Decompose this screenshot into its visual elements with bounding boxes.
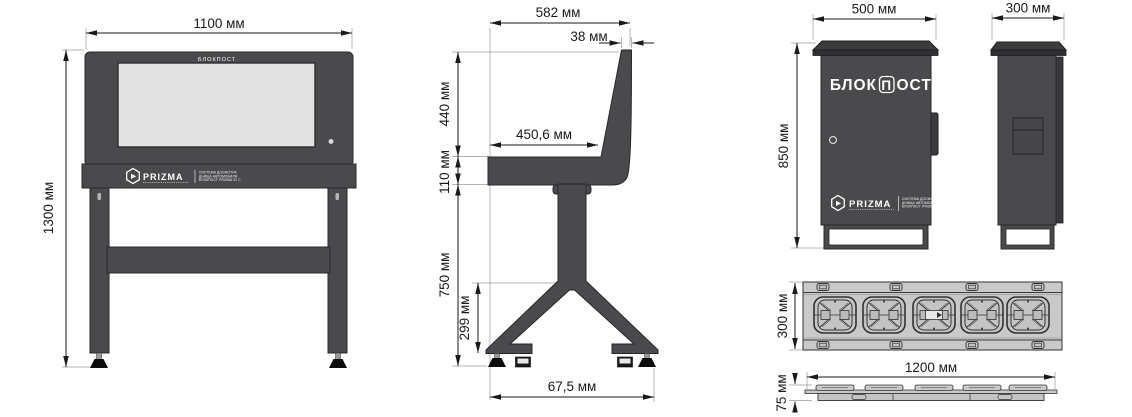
brand-letter: П xyxy=(881,78,892,93)
dim-console-height-label: 1300 мм xyxy=(41,182,56,234)
leg-slot xyxy=(98,193,102,200)
cabinet-base-vent xyxy=(829,229,923,245)
prizma-logo-text: PRIZMA xyxy=(143,172,184,182)
module-dome xyxy=(915,385,953,391)
module-dome xyxy=(865,385,903,391)
cabinet-side-roof xyxy=(991,42,1066,50)
dim-cabinet-width-label: 500 мм xyxy=(852,2,897,17)
cabinet-side-roof-flange xyxy=(991,50,1066,56)
view-cabinet-side: 300 мм xyxy=(991,1,1066,250)
plate-clip xyxy=(817,284,829,291)
dim-plate-length-label: 1200 мм xyxy=(905,360,957,375)
view-console-side: 582 мм 38 мм 440 мм 110 мм 750 мм 450,6 … xyxy=(437,5,658,402)
brand-prefix: БЛОК xyxy=(830,77,877,94)
foot-pad xyxy=(90,359,108,368)
scanner-module xyxy=(1007,297,1049,333)
cabinet-door-edge xyxy=(1056,57,1063,223)
dim-side-feet-label: 67,5 мм xyxy=(548,379,597,394)
console-side-pedestal xyxy=(486,184,658,354)
plate-clip xyxy=(1032,342,1044,349)
module-dome xyxy=(963,385,1001,391)
brand-suffix: ОСТ xyxy=(897,77,932,94)
module-dome xyxy=(1009,385,1047,391)
dim-side-shelfdepth-label: 450,6 мм xyxy=(516,127,572,142)
scanner-module xyxy=(961,297,1003,333)
cabinet-roof xyxy=(813,41,938,50)
dim-plate-height-label: 75 мм xyxy=(774,374,789,411)
view-cabinet-front: 500 мм 850 мм БЛОК П ОСТ PRIZMA СИСТЕМА … xyxy=(776,2,944,250)
foot-stem xyxy=(336,353,341,360)
foot-pad xyxy=(638,358,656,367)
foot-stem xyxy=(97,353,102,360)
cabinet-side-vent xyxy=(1006,229,1050,245)
plate-clip xyxy=(1032,284,1044,291)
cabinet-roof-flange xyxy=(813,50,938,56)
dim-side-display-label: 440 мм xyxy=(437,82,452,127)
caster-foot xyxy=(618,357,633,367)
view-plate-side: 1200 мм 75 мм xyxy=(774,360,1057,412)
technical-drawing-canvas: 1100 мм 1300 мм БЛОКПОСТ PRIZMA СИСТЕМА … xyxy=(0,0,1132,417)
dim-side-top-label: 38 мм xyxy=(570,29,607,44)
console-crossbar xyxy=(107,247,330,273)
leg-slot xyxy=(336,193,340,200)
tagline-line3: БЛОКПОСТ PRIZMA 02 С xyxy=(199,178,241,182)
cabinet-side-panel xyxy=(1013,118,1043,154)
plate-clip xyxy=(817,342,829,349)
cabinet-brand: БЛОК П ОСТ xyxy=(830,77,932,95)
scanner-module xyxy=(814,297,856,333)
scanner-module xyxy=(863,297,905,333)
dim-cabinet-height-label: 850 мм xyxy=(776,124,791,169)
plate-clip xyxy=(890,342,902,349)
view-plate-top: 300 мм xyxy=(775,282,1062,350)
console-side-blade-shelf xyxy=(488,50,632,185)
module-dome xyxy=(816,385,854,391)
foot-pad xyxy=(488,358,506,367)
dim-plate-width-label: 300 мм xyxy=(775,294,790,339)
tagline-line3: БЛОКПОСТ PRIZMA 02 С xyxy=(902,205,944,209)
drawing-svg: 1100 мм 1300 мм БЛОКПОСТ PRIZMA СИСТЕМА … xyxy=(0,0,1132,417)
caster-foot xyxy=(516,357,531,367)
dim-cabinet-depth-label: 300 мм xyxy=(1006,1,1051,16)
bezel-brand-label: БЛОКПОСТ xyxy=(198,57,236,63)
power-indicator xyxy=(329,139,334,144)
console-leg-left xyxy=(90,188,109,353)
plate-clip xyxy=(966,342,978,349)
dim-side-base-label: 299 мм xyxy=(457,296,472,341)
dim-side-shelf-label: 110 мм xyxy=(437,150,452,194)
plate-clip xyxy=(966,284,978,291)
dim-side-depth-label: 582 мм xyxy=(536,5,581,20)
dim-side-pedestal-label: 750 мм xyxy=(437,253,452,298)
prizma-logo-text: PRIZMA xyxy=(849,199,891,210)
plate-clip xyxy=(890,284,902,291)
view-console-front: 1100 мм 1300 мм БЛОКПОСТ PRIZMA СИСТЕМА … xyxy=(41,16,356,368)
console-leg-right xyxy=(328,188,347,353)
foot-pad xyxy=(329,359,347,368)
dim-console-width-label: 1100 мм xyxy=(193,16,244,31)
console-screen xyxy=(118,63,315,147)
